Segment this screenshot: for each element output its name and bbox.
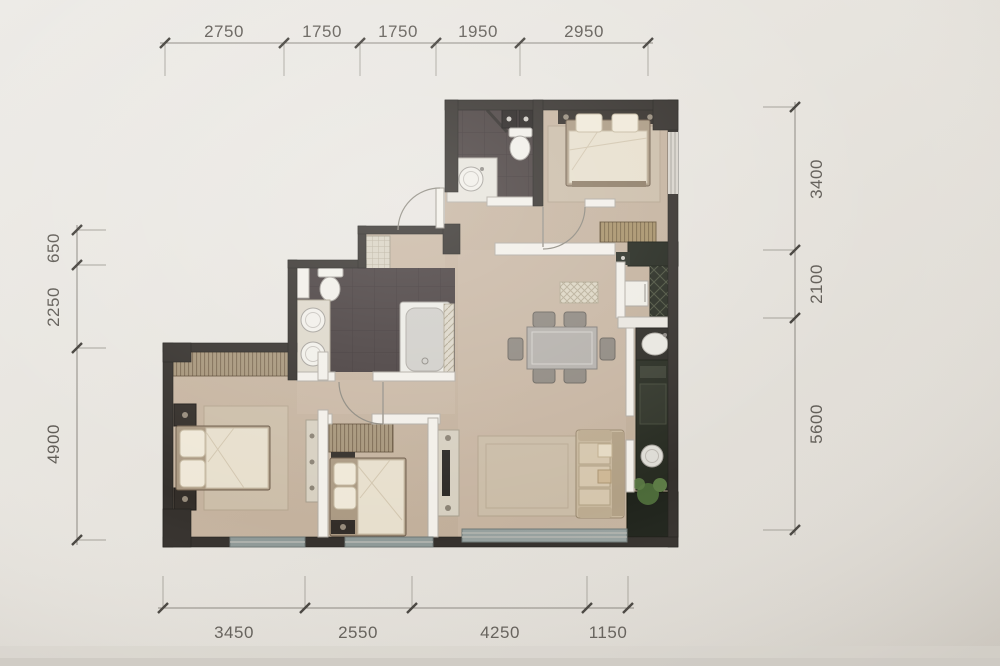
photo-bottom-edge — [0, 658, 1000, 666]
floor-plan-photo: 2750 1750 1750 1950 2950 3450 2550 4250 … — [0, 0, 1000, 666]
floor-plan-canvas: 2750 1750 1750 1950 2950 3450 2550 4250 … — [0, 0, 1000, 666]
photo-vignette — [0, 0, 1000, 666]
